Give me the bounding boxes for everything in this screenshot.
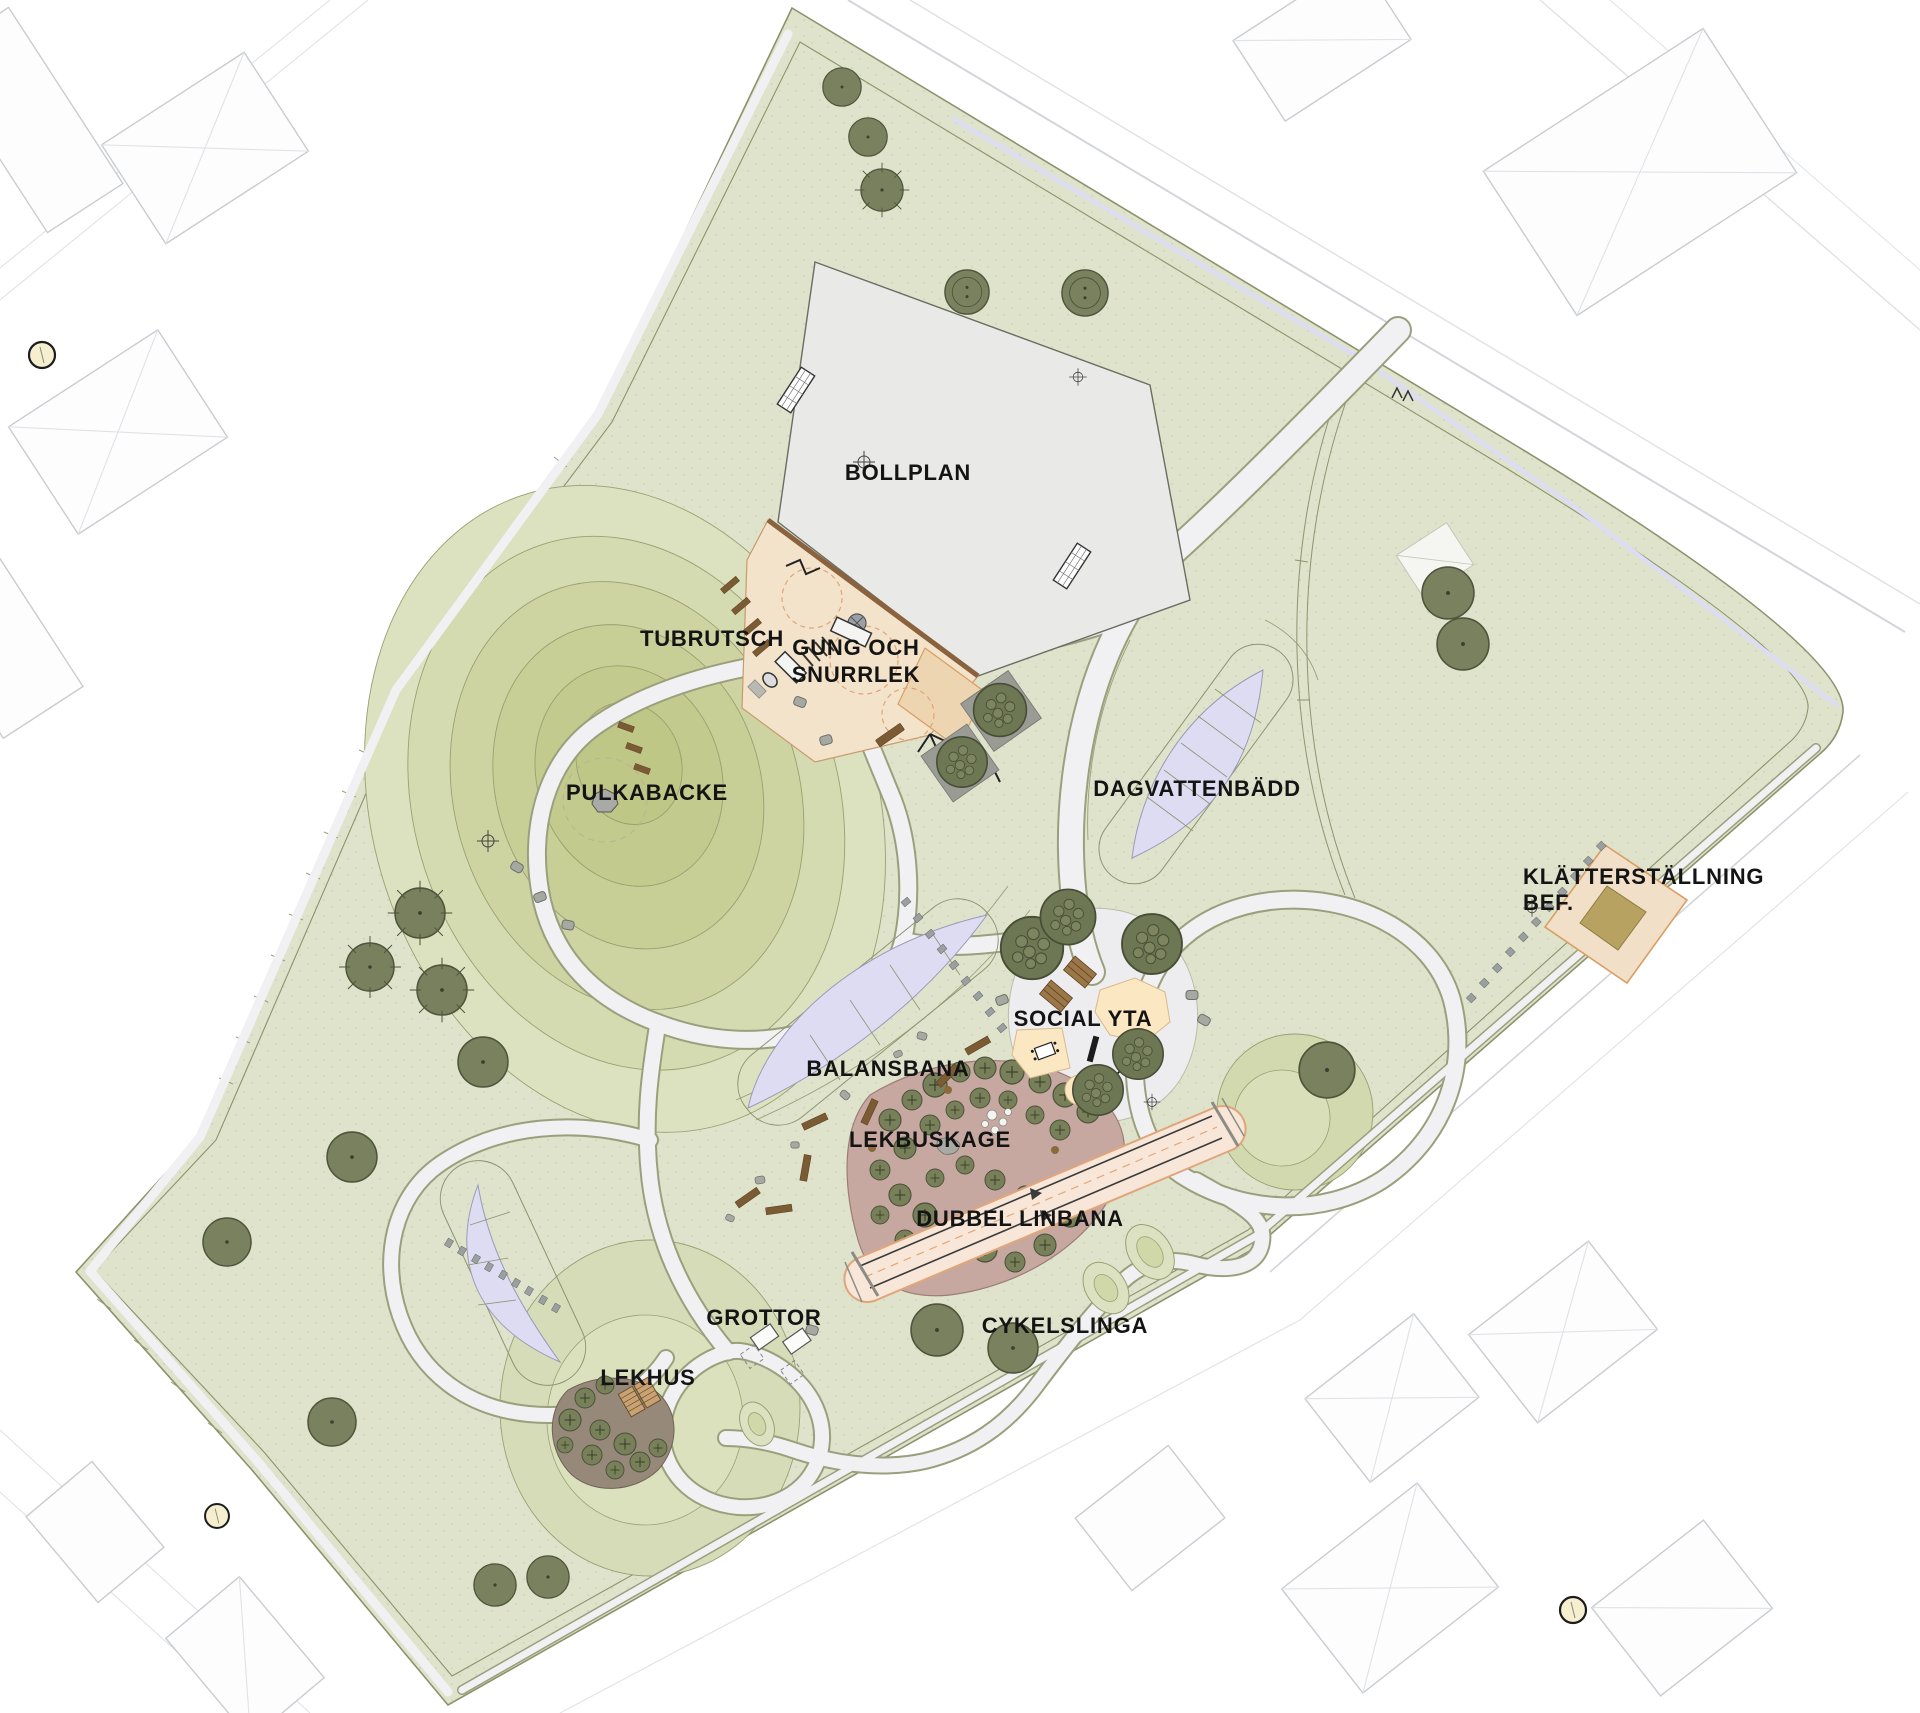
label-lekbuskage: LEKBUSKAGE xyxy=(849,1127,1011,1152)
label-dagvattenbadd: DAGVATTENBÄDD xyxy=(1093,776,1301,801)
label-lekhus: LEKHUS xyxy=(600,1365,695,1390)
boundary-marker xyxy=(205,1504,229,1528)
boundary-marker xyxy=(1560,1597,1586,1623)
playhouse xyxy=(552,1376,674,1488)
label-social-yta: SOCIAL YTA xyxy=(1014,1006,1153,1031)
label-grottor: GROTTOR xyxy=(706,1305,821,1330)
label-tubrutsch: TUBRUTSCH xyxy=(640,626,784,651)
label-balansbana: BALANSBANA xyxy=(806,1056,969,1081)
label-klatterstallning-line1: KLÄTTERSTÄLLNING xyxy=(1523,864,1764,889)
label-dubbel-linbana: DUBBEL LINBANA xyxy=(916,1206,1124,1231)
label-klatterstallning-line2: BEF. xyxy=(1523,890,1574,915)
boundary-marker xyxy=(29,342,55,368)
label-cykelslinga: CYKELSLINGA xyxy=(982,1313,1148,1338)
label-pulkabacke: PULKABACKE xyxy=(566,780,728,805)
label-bollplan: BOLLPLAN xyxy=(845,460,971,485)
label-gung-line2: SNURRLEK xyxy=(792,662,921,687)
label-gung-line1: GUNG OCH xyxy=(792,635,919,660)
park-plan-drawing: BOLLPLAN TUBRUTSCH GUNG OCH SNURRLEK PUL… xyxy=(0,0,1920,1713)
